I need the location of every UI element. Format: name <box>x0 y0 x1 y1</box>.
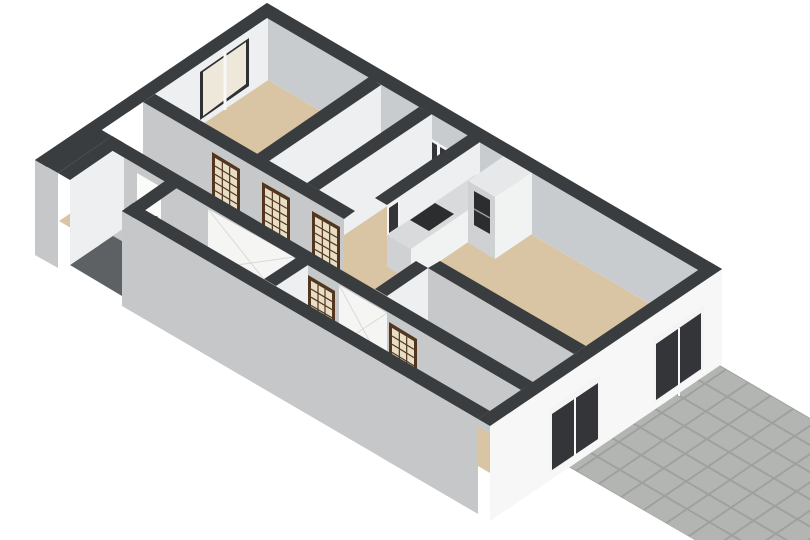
floorplan-stage <box>0 0 810 540</box>
floorplan-3d-view[interactable] <box>0 0 810 540</box>
exterior-corner-w-face <box>35 160 58 268</box>
